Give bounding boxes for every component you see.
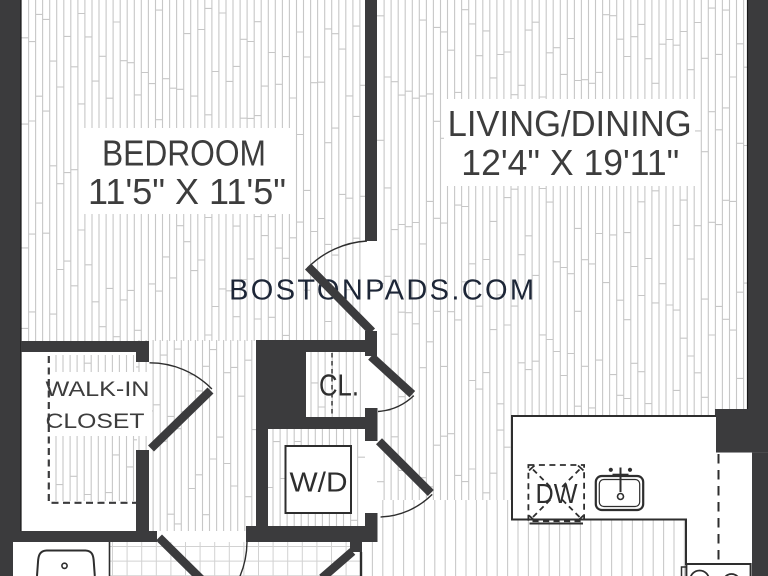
svg-text:CL.: CL. [319, 368, 359, 403]
svg-text:BOSTONPADS.COM: BOSTONPADS.COM [229, 275, 534, 307]
svg-text:BEDROOM: BEDROOM [102, 133, 266, 174]
svg-text:W/D: W/D [290, 467, 348, 498]
svg-text:LIVING/DINING: LIVING/DINING [448, 103, 692, 144]
svg-text:11'5" X 11'5": 11'5" X 11'5" [88, 171, 286, 212]
svg-text:WALK-IN: WALK-IN [46, 377, 150, 401]
svg-text:12'4" X 19'11": 12'4" X 19'11" [461, 142, 679, 183]
svg-text:DW: DW [536, 478, 578, 509]
svg-text:CLOSET: CLOSET [46, 409, 145, 433]
